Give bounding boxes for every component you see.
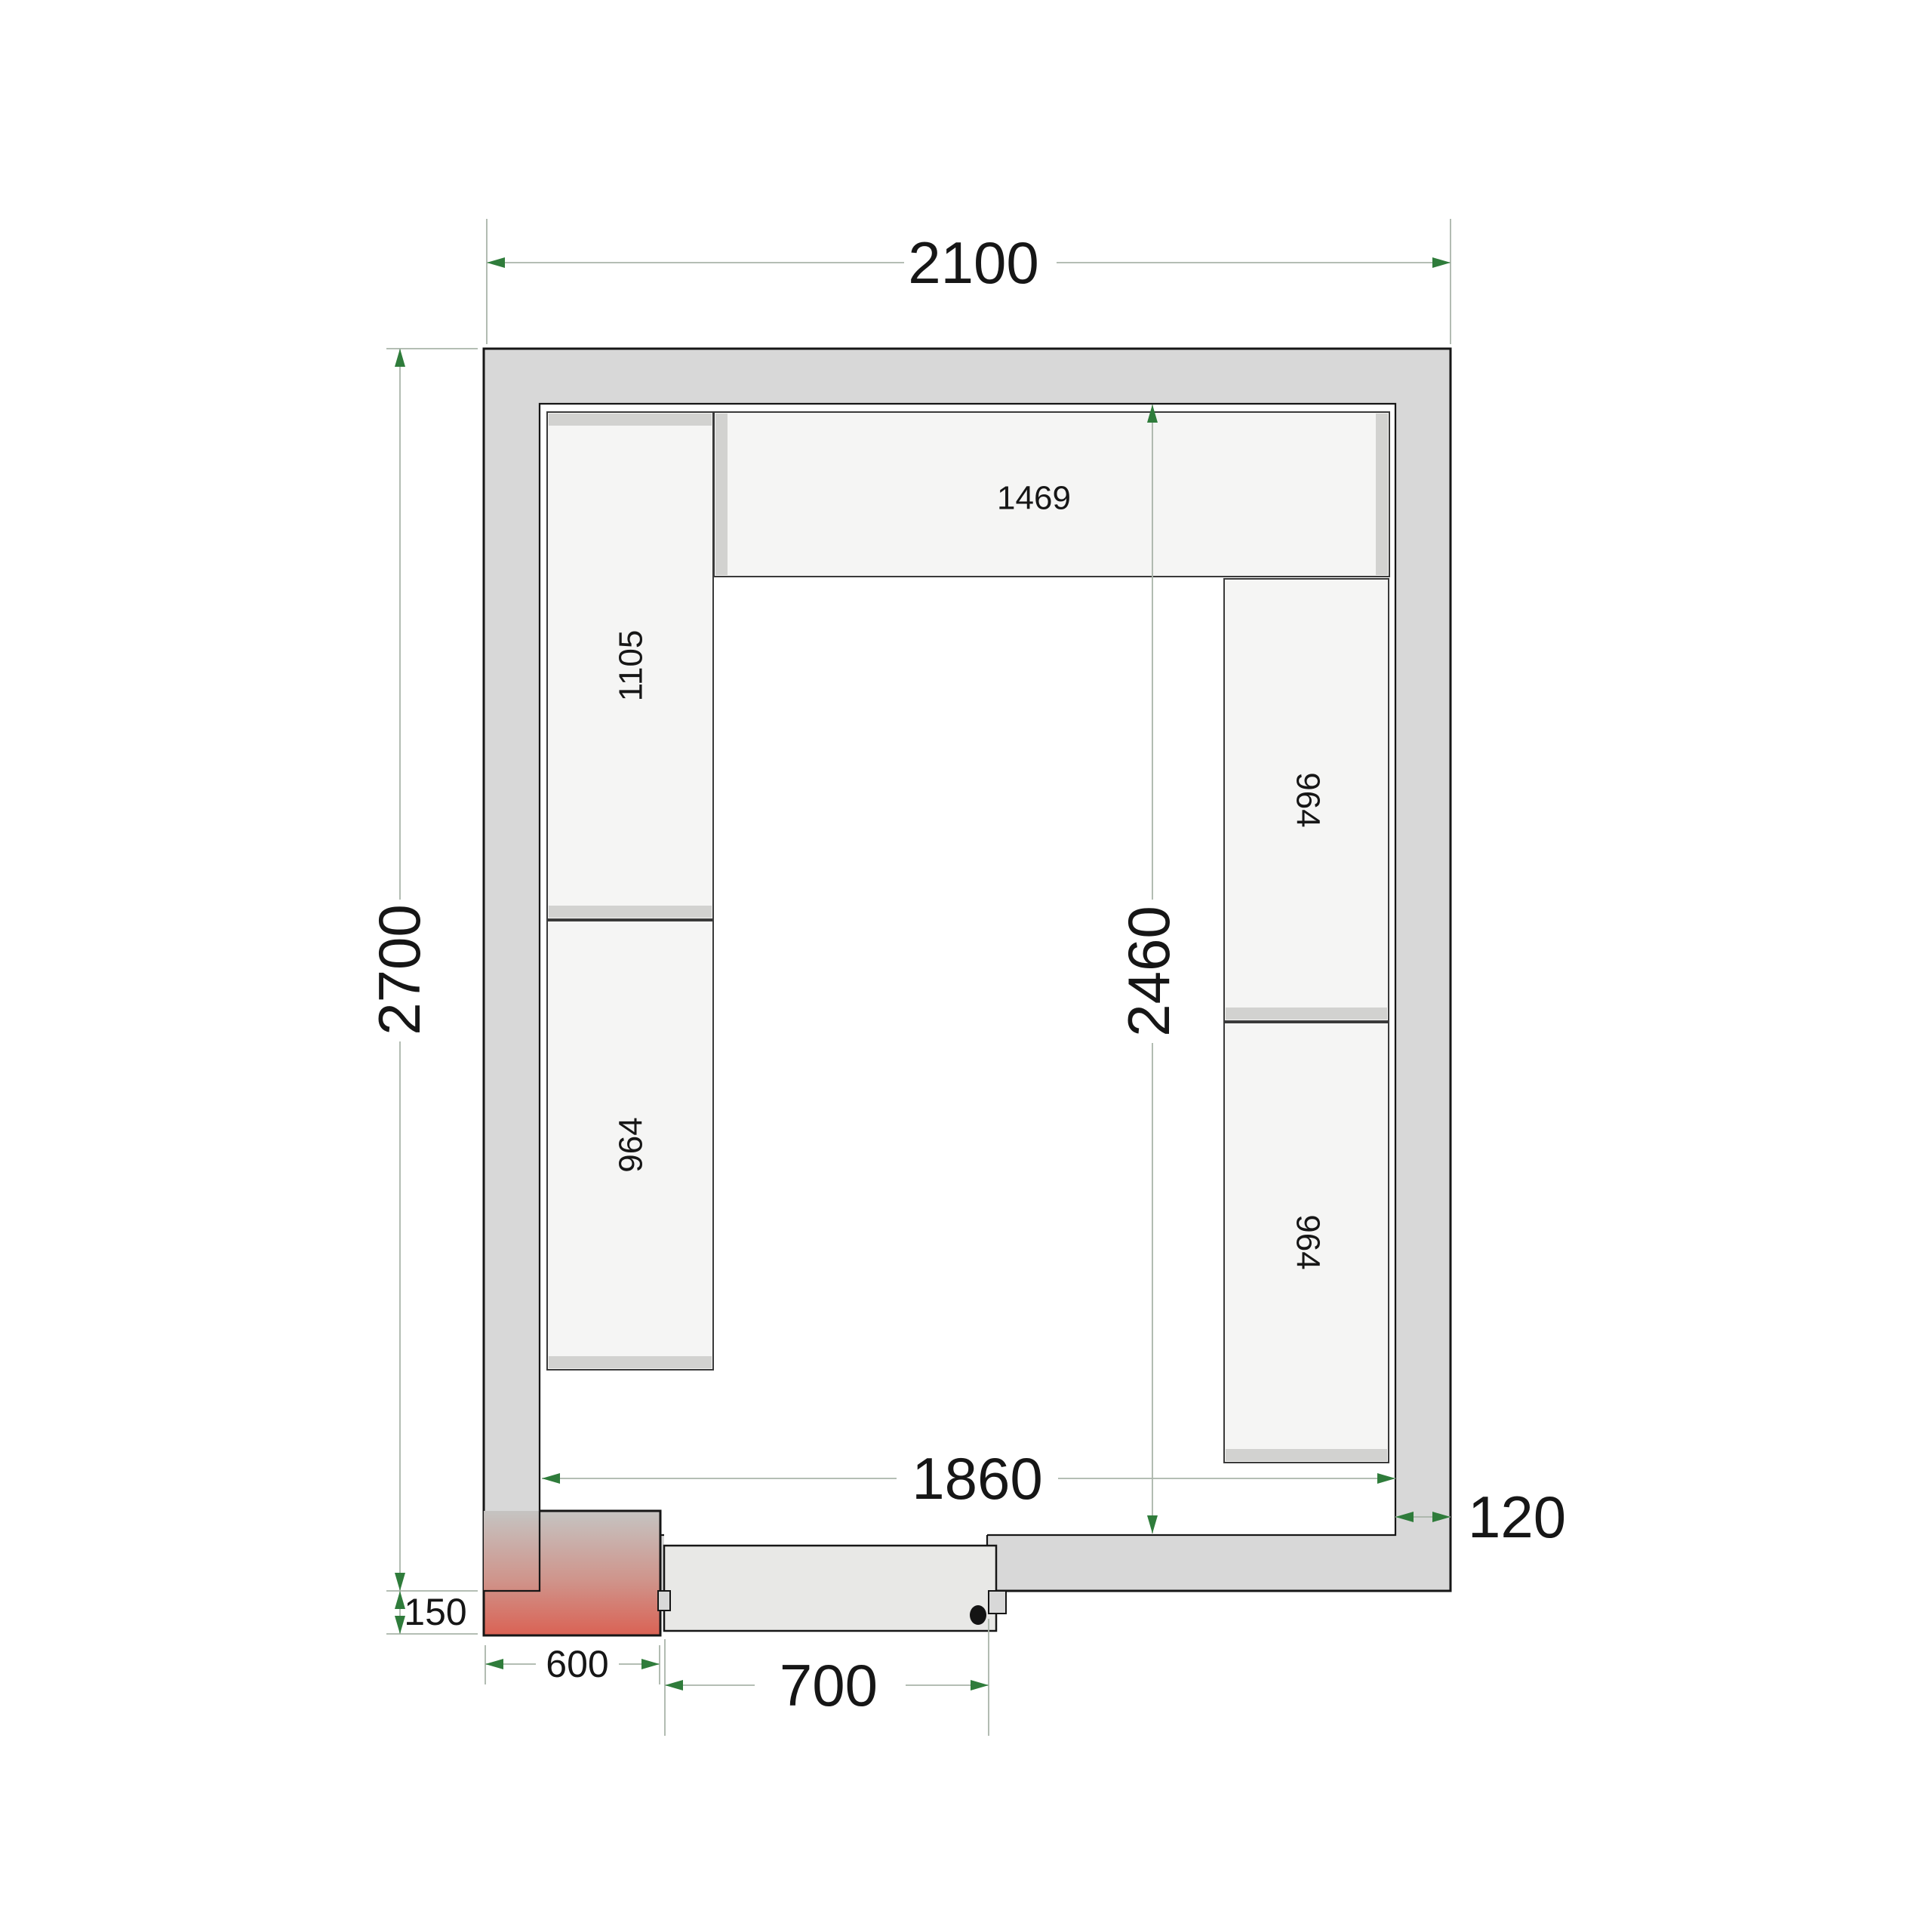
shelf-top: 1469 xyxy=(714,412,1389,577)
door-handle xyxy=(970,1605,986,1625)
shelf-right-upper: 964 xyxy=(1224,579,1389,1021)
dimension-outer-height: 2700 xyxy=(366,349,478,1591)
shelf-end-cap xyxy=(1226,1008,1387,1020)
shelf-left-upper: 1105 xyxy=(547,412,713,919)
dim-outer-width-label: 2100 xyxy=(908,229,1039,296)
shelf-right-lower: 964 xyxy=(1224,1023,1389,1463)
shelving: 1105 964 1469 964 964 xyxy=(547,412,1389,1463)
dimension-door-width: 700 xyxy=(665,1619,989,1736)
arrow-down xyxy=(395,1573,405,1591)
shelf-left-lower-label: 964 xyxy=(613,1117,650,1172)
shelf-end-cap xyxy=(549,1356,712,1368)
dim-door-width-label: 700 xyxy=(780,1652,878,1718)
shelf-end-cap xyxy=(1376,414,1388,575)
shelf-end-cap xyxy=(1226,1449,1387,1461)
dim-unit-width-label: 600 xyxy=(546,1643,608,1685)
cooling-unit xyxy=(484,1511,660,1635)
arrow-right xyxy=(641,1659,660,1669)
arrow-right xyxy=(1377,1473,1395,1484)
arrow-left xyxy=(665,1680,683,1690)
dim-wall-thickness-label: 120 xyxy=(1468,1484,1566,1550)
arrow-up xyxy=(395,349,405,367)
dimension-outer-width: 2100 xyxy=(487,219,1451,344)
shelf-right-upper-label: 964 xyxy=(1290,772,1327,827)
shelf-end-cap xyxy=(549,906,712,918)
shelf-end-cap xyxy=(549,414,712,426)
shelf-end-cap xyxy=(715,414,728,575)
dim-inner-height-label: 2460 xyxy=(1115,906,1182,1037)
dim-inner-width-label: 1860 xyxy=(912,1445,1043,1512)
dimension-unit-protrusion: 150 xyxy=(386,1591,478,1634)
arrow-right xyxy=(1432,257,1451,268)
arrow-left xyxy=(487,257,505,268)
shelf-left-lower: 964 xyxy=(547,921,713,1370)
arrow-left xyxy=(485,1659,503,1669)
door-jamb-right xyxy=(989,1591,1006,1614)
door xyxy=(658,1546,1006,1631)
arrow-down xyxy=(1147,1515,1158,1534)
arrow-right xyxy=(971,1680,989,1690)
dim-outer-height-label: 2700 xyxy=(366,904,432,1035)
floor-plan-canvas: 1105 964 1469 964 964 xyxy=(0,0,1932,1932)
dim-unit-protrusion-label: 150 xyxy=(404,1591,466,1633)
dimension-unit-width: 600 xyxy=(485,1643,660,1685)
cooling-unit-body xyxy=(484,1511,660,1635)
door-jamb-left xyxy=(658,1591,670,1611)
door-leaf xyxy=(664,1546,996,1631)
shelf-top-label: 1469 xyxy=(997,480,1071,517)
shelf-right-lower-label: 964 xyxy=(1290,1214,1327,1269)
arrow-left xyxy=(542,1473,560,1484)
shelf-left-upper-label: 1105 xyxy=(613,630,650,702)
page: 1105 964 1469 964 964 xyxy=(0,0,1932,1932)
